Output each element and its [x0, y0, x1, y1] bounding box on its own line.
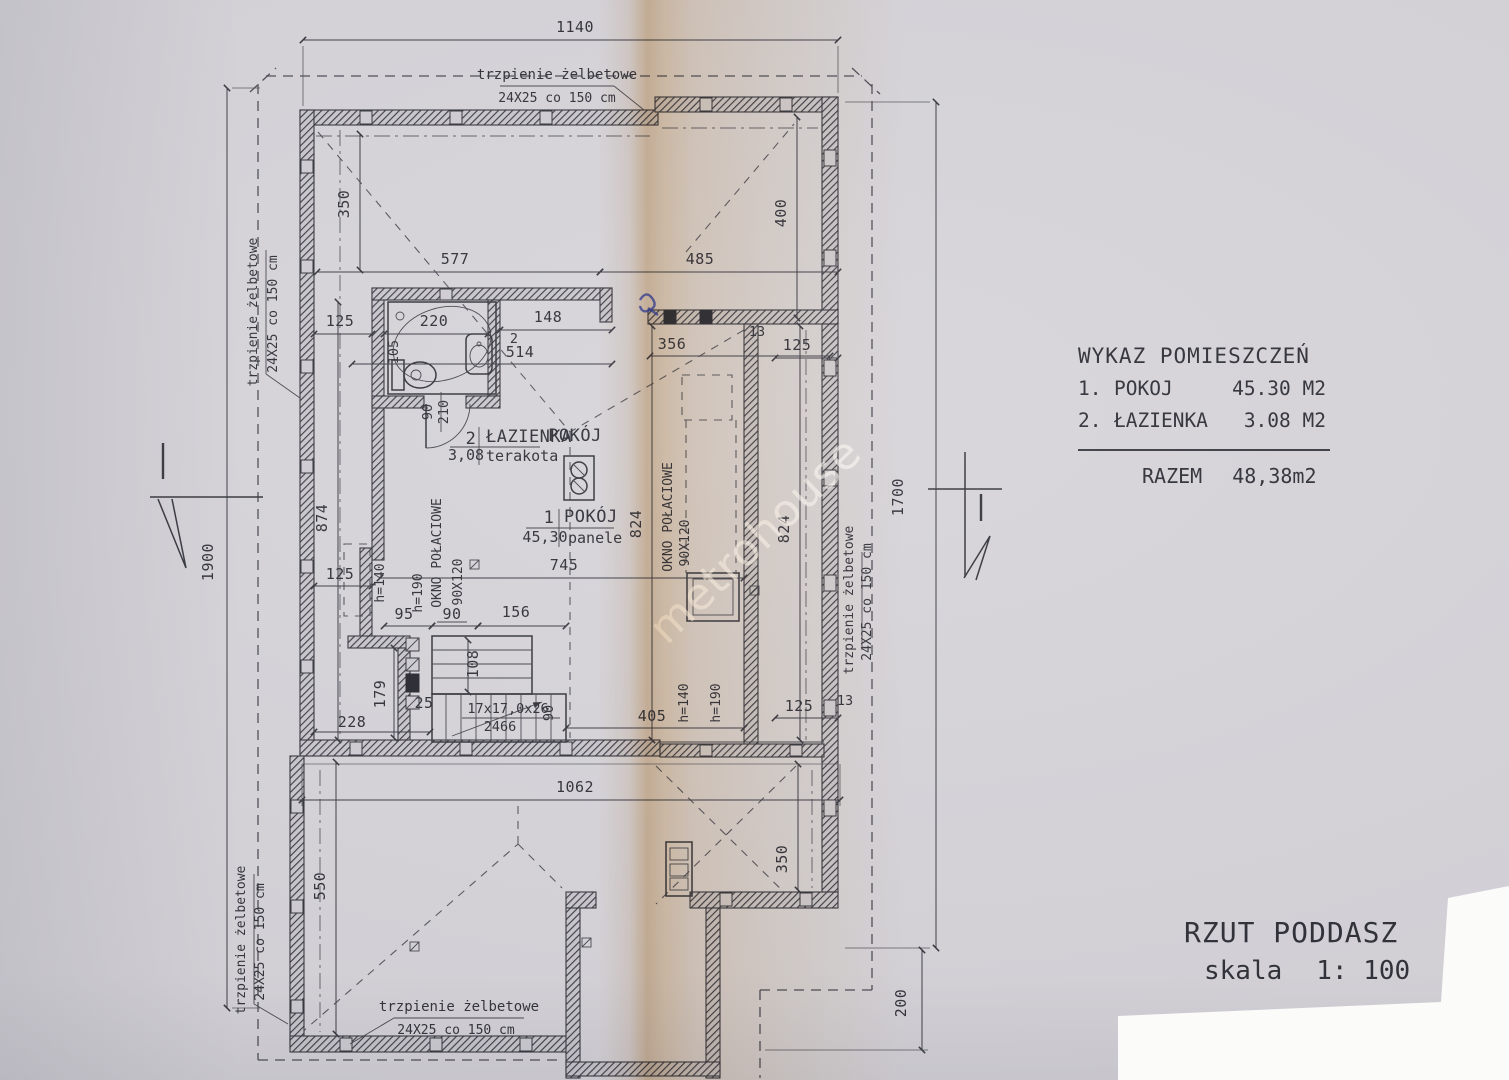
wall-bay-bottom: [566, 1062, 720, 1076]
window-left-size: 90X120: [451, 559, 466, 606]
plan-scale-value: 1: 100: [1316, 956, 1410, 986]
note-bottom-2: 24X25 co 150 cm: [397, 1023, 515, 1038]
dim-179: 179: [371, 680, 389, 709]
dim-148: 148: [534, 308, 563, 326]
dim-1062: 1062: [556, 778, 594, 796]
wall-bay-right: [706, 908, 720, 1078]
wall-bay-left: [566, 908, 580, 1078]
dim-door-90: 90: [420, 404, 436, 420]
schedule-row-2: 2. ŁAZIENKA 3.08 M2: [1078, 409, 1326, 432]
note-left-1: trzpienie żelbetowe: [246, 237, 261, 386]
dim-1900: 1900: [199, 543, 217, 581]
dim-90: 90: [442, 605, 461, 623]
room1-number: 1: [544, 508, 555, 528]
dim-485: 485: [686, 250, 715, 268]
room-schedule: WYKAZ POMIESZCZEŃ 1. POKOJ 45.30 M2 2. Ł…: [1078, 344, 1326, 488]
dim-125-bath: 125: [326, 312, 355, 330]
dim-356: 356: [658, 335, 687, 353]
schedule-row-1-name: POKOJ: [1114, 377, 1208, 400]
room1-floor: panele: [568, 529, 622, 547]
stair-spec: 17x17,0x26: [467, 701, 548, 717]
dim-350-br: 350: [773, 845, 791, 874]
floor-plan-photo: 1140 577 485 125 220 148 2 514 356 13 12…: [0, 0, 1509, 1080]
schedule-row-2-no: 2.: [1078, 409, 1114, 432]
dim-156: 156: [502, 603, 531, 621]
dim-13-br: 13: [837, 693, 853, 709]
wall-left: [300, 110, 314, 756]
plan-scale-label: skala: [1204, 956, 1282, 986]
chimney-block: [664, 310, 676, 324]
note-bottomleft-2: 24X25 co 150 cm: [253, 883, 268, 1001]
wall-bath-bottom-b: [466, 396, 500, 408]
schedule-row-1-no: 1.: [1078, 377, 1114, 400]
wall-bay-top-a: [566, 892, 596, 908]
dim-824-left: 824: [627, 510, 645, 539]
wall-bay-top-b: [690, 892, 838, 908]
note-left-2: 24X25 co 150 cm: [266, 255, 281, 373]
schedule-row-1-area: 45.30 M2: [1208, 377, 1326, 400]
dim-108: 108: [464, 650, 482, 679]
schedule-total-label: RAZEM: [1142, 464, 1202, 488]
room-labels: 2 ŁAZIENKA 3,08 terakota POKÓJ 1 POKÓJ 4…: [448, 424, 622, 547]
bathroom-floor: terakota: [486, 447, 558, 465]
dim-25: 25: [414, 694, 433, 712]
wall-step: [600, 288, 612, 322]
window-bottom-h190: h=190: [709, 683, 724, 722]
wall-bath-top: [372, 288, 612, 300]
wall-top-left: [300, 110, 658, 125]
wall-right-upper: [822, 97, 838, 324]
title-block: RZUT PODDASZ skala 1: 100: [1184, 916, 1410, 986]
plan-title: RZUT PODDASZ: [1184, 916, 1410, 949]
dim-228: 228: [338, 713, 367, 731]
schedule-title: WYKAZ POMIESZCZEŃ: [1078, 344, 1326, 368]
dim-door-210: 210: [436, 400, 452, 424]
pokoj-header: POKÓJ: [548, 424, 602, 446]
room1-area: 45,30: [522, 528, 567, 546]
wall-stair-step: [348, 636, 410, 648]
dim-1140: 1140: [556, 18, 594, 36]
window-left-h140: h=140: [373, 563, 388, 602]
note-bottomleft-1: trzpienie żelbetowe: [234, 865, 249, 1014]
window-left-h190: h=190: [411, 573, 426, 612]
wall-top-right: [655, 97, 838, 112]
window-right-label: OKNO POŁACIOWE: [661, 462, 676, 572]
dim-200: 200: [892, 989, 910, 1018]
schedule-row-1: 1. POKOJ 45.30 M2: [1078, 377, 1326, 400]
schedule-row-2-name: ŁAZIENKA: [1114, 409, 1208, 432]
wall-room-right: [744, 324, 758, 750]
dim-1700: 1700: [889, 478, 907, 516]
dim-824-right: 824: [775, 515, 793, 544]
note-right-1: trzpienie żelbetowe: [842, 525, 857, 674]
dim-125-br: 125: [785, 697, 814, 715]
dim-220: 220: [420, 312, 449, 330]
dim-350-tl: 350: [335, 190, 353, 219]
dim-745: 745: [550, 556, 579, 574]
note-top-1: trzpienie żelbetowe: [477, 67, 637, 83]
dim-550: 550: [311, 872, 329, 901]
dim-90-stair: 90: [541, 705, 557, 721]
chimney-lower: [666, 842, 692, 896]
schedule-total: RAZEM 48,38m2: [1078, 464, 1326, 488]
note-top-2: 24X25 co 150 cm: [498, 91, 616, 106]
section-marker-right: [928, 452, 1002, 580]
schedule-total-value: 48,38m2: [1232, 464, 1316, 488]
note-bottom-1: trzpienie żelbetowe: [379, 999, 539, 1015]
stair-run: 2466: [484, 719, 517, 735]
dim-577: 577: [441, 250, 470, 268]
wall-bath-bottom-a: [372, 396, 424, 408]
window-right-size: 90X120: [678, 520, 693, 567]
schedule-divider: [1078, 449, 1330, 451]
roof-window-right: [682, 375, 739, 621]
dim-400: 400: [772, 199, 790, 228]
dim-405: 405: [638, 707, 667, 725]
schedule-row-2-area: 3.08 M2: [1208, 409, 1326, 432]
chimney-block: [700, 310, 712, 324]
window-labels: h=140 h=190 OKNO POŁACIOWE 90X120 OKNO P…: [373, 462, 724, 722]
room1-name: POKÓJ: [564, 505, 618, 527]
window-bottom-h140: h=140: [677, 683, 692, 722]
dim-514: 514: [506, 343, 535, 361]
dim-125-tr: 125: [783, 336, 812, 354]
dim-125-left: 125: [326, 565, 355, 583]
plan-scale: skala 1: 100: [1184, 956, 1410, 986]
dim-874: 874: [313, 504, 331, 533]
window-left-label: OKNO POŁACIOWE: [430, 498, 445, 608]
dim-13: 13: [749, 324, 765, 340]
wall-bath-right: [488, 300, 500, 396]
dim-105: 105: [386, 340, 402, 364]
chimney-main: [564, 456, 594, 500]
wall-bath-left: [372, 288, 384, 560]
